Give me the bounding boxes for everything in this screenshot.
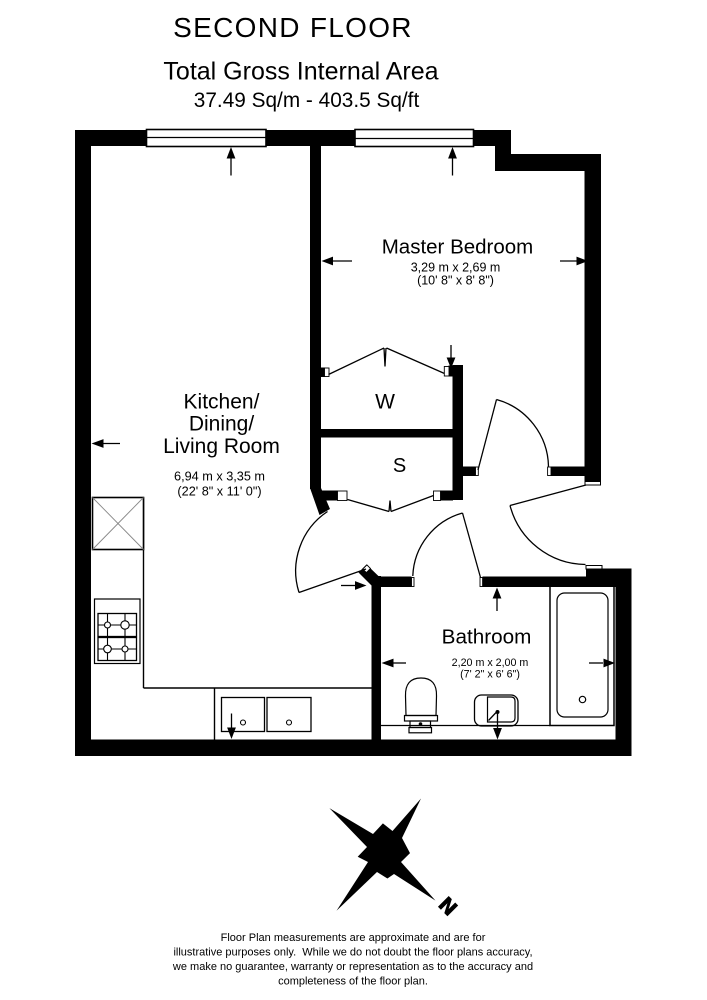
svg-text:37.49 Sq/m - 403.5 Sq/ft: 37.49 Sq/m - 403.5 Sq/ft: [194, 89, 420, 112]
svg-text:Living Room: Living Room: [163, 435, 280, 458]
svg-text:2,20 m x 2,00 m: 2,20 m x 2,00 m: [452, 657, 529, 669]
svg-text:(10' 8" x 8' 8"): (10' 8" x 8' 8"): [417, 274, 494, 288]
svg-text:SECOND FLOOR: SECOND FLOOR: [173, 12, 413, 43]
svg-text:(7' 2" x 6' 6"): (7' 2" x 6' 6"): [460, 669, 520, 681]
svg-text:Dining/: Dining/: [189, 413, 255, 436]
svg-text:Master Bedroom: Master Bedroom: [382, 236, 534, 259]
svg-text:Total Gross Internal Area: Total Gross Internal Area: [163, 58, 438, 86]
svg-text:W: W: [375, 391, 395, 414]
svg-text:we make no guarantee, warranty: we make no guarantee, warranty or repres…: [172, 961, 533, 973]
svg-text:Bathroom: Bathroom: [442, 626, 532, 649]
svg-text:6,94 m x 3,35 m: 6,94 m x 3,35 m: [174, 470, 265, 484]
svg-text:3,29 m x 2,69 m: 3,29 m x 2,69 m: [411, 261, 501, 275]
svg-text:completeness of the floor plan: completeness of the floor plan.: [278, 976, 428, 988]
svg-text:(22' 8" x 11' 0"): (22' 8" x 11' 0"): [177, 485, 261, 499]
svg-text:S: S: [393, 455, 406, 477]
svg-text:illustrative purposes only. W: illustrative purposes only. While we do …: [173, 947, 532, 959]
svg-text:Floor Plan measurements are ap: Floor Plan measurements are approximate …: [221, 932, 486, 944]
svg-text:Kitchen/: Kitchen/: [184, 391, 260, 414]
